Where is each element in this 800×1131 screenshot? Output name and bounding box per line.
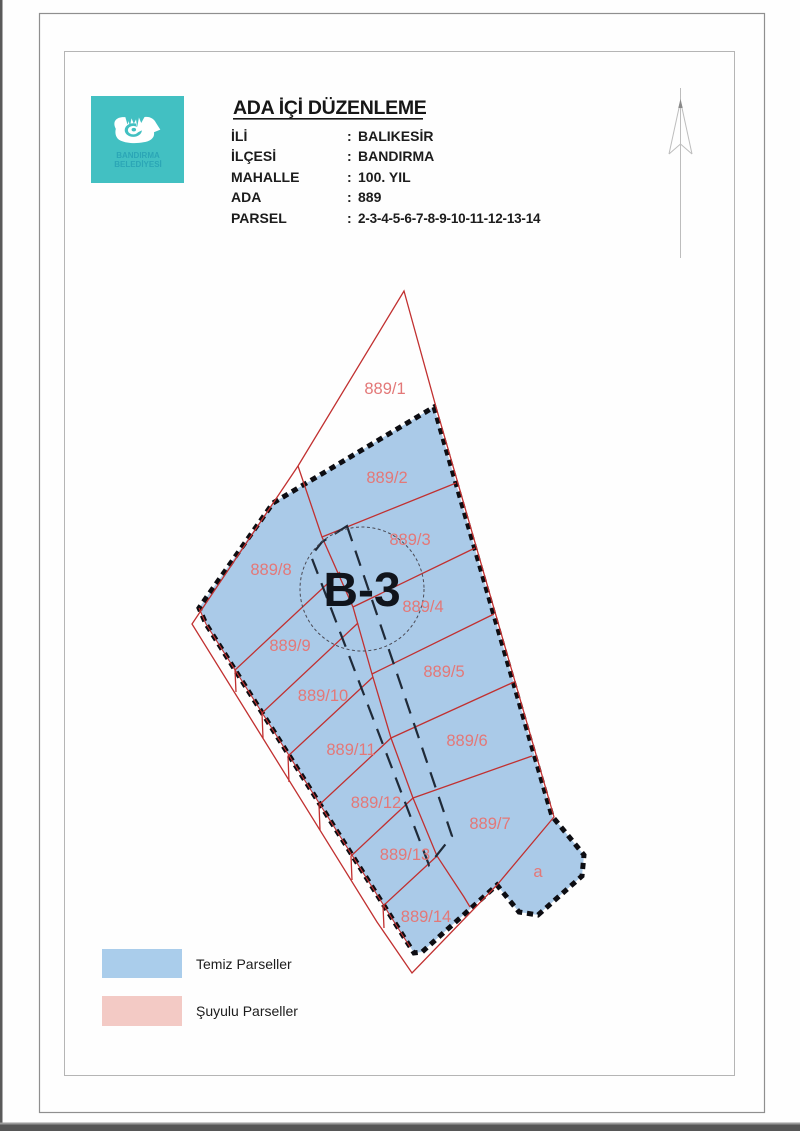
- svg-text:889/4: 889/4: [402, 598, 443, 616]
- svg-text:BANDIRMA: BANDIRMA: [358, 148, 434, 164]
- svg-text:Şuyulu Parseller: Şuyulu Parseller: [196, 1003, 298, 1019]
- svg-text:889/5: 889/5: [423, 663, 464, 681]
- svg-text:a: a: [533, 863, 543, 881]
- svg-text::: :: [347, 128, 352, 144]
- svg-text:MAHALLE: MAHALLE: [231, 169, 299, 185]
- svg-text:889: 889: [358, 189, 382, 205]
- svg-text:889/6: 889/6: [446, 732, 487, 750]
- svg-text:889/3: 889/3: [389, 531, 430, 549]
- svg-text:889/8: 889/8: [250, 561, 291, 579]
- svg-text::: :: [347, 148, 352, 164]
- svg-text:BALIKESİR: BALIKESİR: [358, 128, 433, 144]
- svg-text:Temiz Parseller: Temiz Parseller: [196, 956, 292, 972]
- svg-text::: :: [347, 189, 352, 205]
- svg-text:889/11: 889/11: [326, 741, 375, 759]
- svg-text:100. YIL: 100. YIL: [358, 169, 411, 185]
- svg-text:İLİ: İLİ: [231, 128, 247, 144]
- svg-text:889/12: 889/12: [351, 794, 401, 812]
- svg-text:ADA İÇİ DÜZENLEME: ADA İÇİ DÜZENLEME: [233, 96, 427, 119]
- svg-text:ADA: ADA: [231, 189, 261, 205]
- svg-text:PARSEL: PARSEL: [231, 210, 287, 226]
- svg-text:889/10: 889/10: [298, 687, 348, 705]
- svg-text:889/13: 889/13: [380, 846, 430, 864]
- svg-text:BELEDİYESİ: BELEDİYESİ: [114, 160, 162, 169]
- svg-text:İLÇESİ: İLÇESİ: [231, 148, 276, 164]
- svg-text:889/14: 889/14: [401, 908, 451, 926]
- svg-text:BANDIRMA: BANDIRMA: [116, 151, 160, 160]
- svg-text:889/1: 889/1: [364, 380, 405, 398]
- svg-text:2-3-4-5-6-7-8-9-10-11-12-13-14: 2-3-4-5-6-7-8-9-10-11-12-13-14: [358, 211, 541, 226]
- svg-text:B-3: B-3: [323, 564, 400, 617]
- svg-text:889/7: 889/7: [469, 815, 510, 833]
- svg-text:889/9: 889/9: [269, 637, 310, 655]
- svg-text:889/2: 889/2: [366, 469, 407, 487]
- svg-text::: :: [347, 169, 352, 185]
- svg-text::: :: [347, 210, 352, 226]
